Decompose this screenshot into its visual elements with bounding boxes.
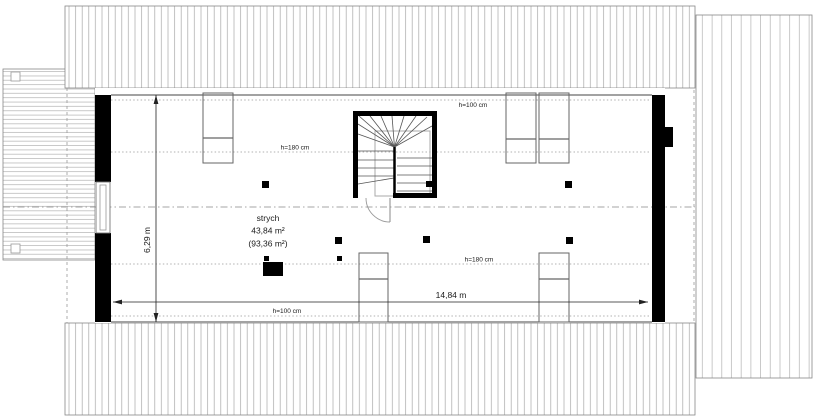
post	[565, 181, 572, 188]
wall-right	[652, 95, 665, 322]
post	[423, 236, 430, 243]
attic-floor-plan: h=100 cm h=180 cm h=180 cm h=100 cm stry…	[0, 0, 821, 417]
roof-band-bottom	[65, 323, 695, 415]
post	[335, 237, 342, 244]
deck-post-anchor-bottom	[11, 244, 20, 253]
width-dimension-label: 14,84 m	[436, 290, 467, 300]
post	[262, 181, 269, 188]
annex-roof	[696, 15, 812, 378]
wall-right-stub	[665, 127, 673, 147]
left-gable-window	[96, 182, 110, 233]
wall-left-bottom	[95, 233, 111, 322]
left-deck	[3, 69, 95, 260]
h100-label-bottom: h=100 cm	[273, 308, 302, 315]
depth-dimension-label: 6,29 m	[142, 227, 152, 253]
wall-left-top	[95, 95, 111, 182]
roof-band-top	[65, 6, 695, 88]
h100-label-top: h=100 cm	[459, 102, 488, 109]
attic-floor	[95, 88, 665, 323]
post-small	[264, 256, 269, 261]
room-name: strych	[257, 213, 280, 223]
post	[566, 237, 573, 244]
deck-post-anchor-top	[11, 72, 20, 81]
post-small	[337, 256, 342, 261]
room-area-total: (93,36 m²)	[248, 239, 287, 249]
chimney	[263, 262, 283, 276]
h180-label-top: h=180 cm	[281, 145, 310, 152]
floor-plan-drawing: h=100 cm h=180 cm h=180 cm h=100 cm stry…	[0, 0, 821, 417]
h180-label-bottom: h=180 cm	[465, 257, 494, 264]
stair-wall-nib	[426, 181, 432, 187]
room-area-usable: 43,84 m²	[251, 226, 285, 236]
